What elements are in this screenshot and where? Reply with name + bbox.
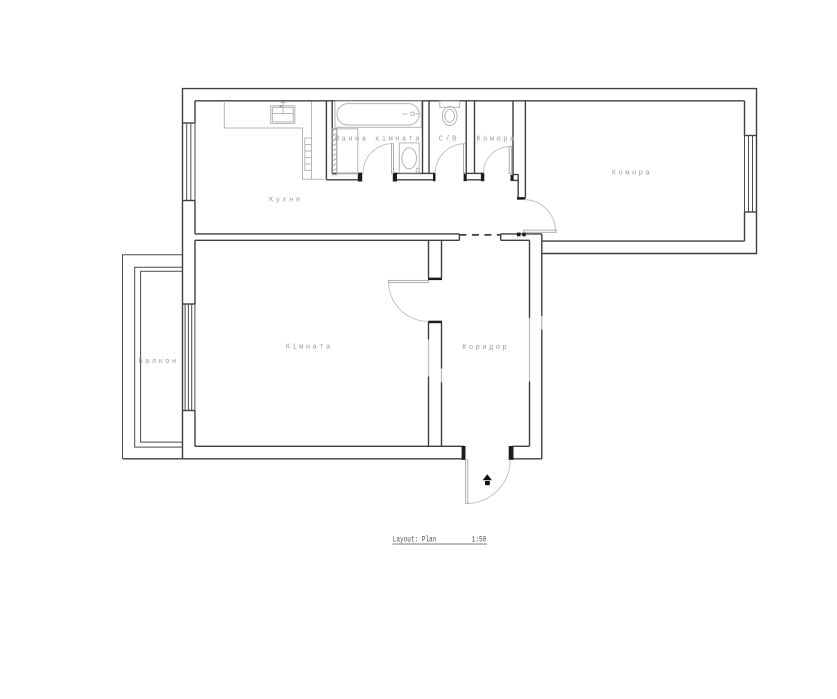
svg-text:Комора: Комора [612,170,652,178]
svg-text:Layout: Plan: Layout: Plan [393,535,437,545]
svg-text:1:50: 1:50 [472,536,487,545]
svg-text:Коридор: Коридор [462,344,509,352]
svg-text:Комора: Комора [476,136,516,144]
svg-text:Балкон: Балкон [138,358,178,366]
svg-text:Кімната: Кімната [286,343,333,352]
svg-text:Кухня: Кухня [269,197,303,205]
svg-text:Ванна кімната: Ванна кімната [335,135,422,144]
svg-text:С/В: С/В [439,136,459,144]
